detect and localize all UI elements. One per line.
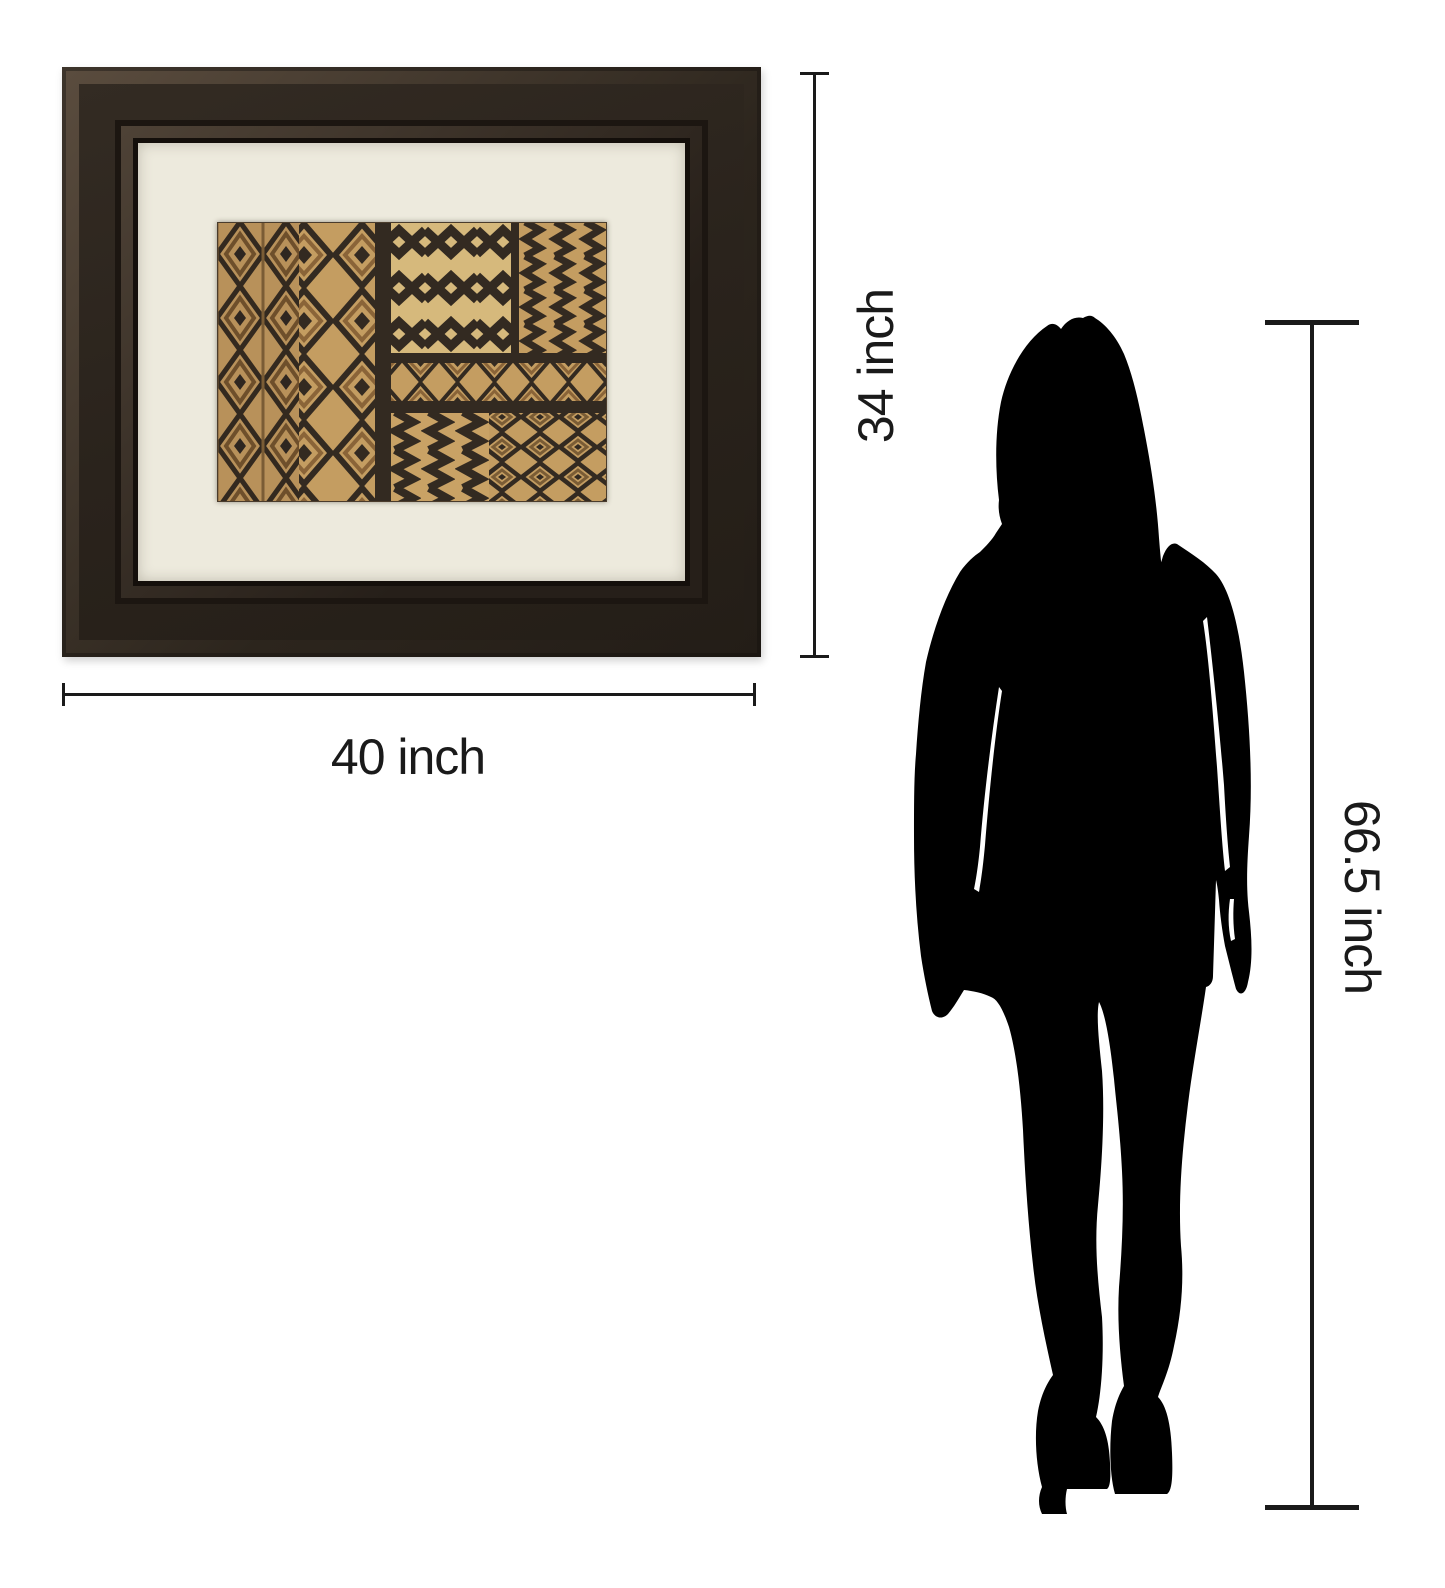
person-dimension-line xyxy=(1310,322,1314,1510)
frame-molding-inner-bevel xyxy=(121,126,702,598)
artwork-image xyxy=(217,222,607,502)
height-dimension-top-cap xyxy=(800,72,829,75)
width-dimension-right-cap xyxy=(753,683,756,706)
picture-frame xyxy=(62,67,761,657)
person-dimension-bottom-cap xyxy=(1265,1505,1359,1510)
person-dimension-top-cap xyxy=(1265,320,1359,325)
mat-board xyxy=(138,143,685,581)
height-dimension-bottom-cap xyxy=(800,655,829,658)
height-dimension-line xyxy=(813,72,816,658)
frame-molding-flat xyxy=(79,84,744,640)
width-dimension-left-cap xyxy=(62,683,65,706)
width-dimension-line xyxy=(62,693,756,696)
frame-height-label: 34 inch xyxy=(851,289,901,443)
person-height-label: 66.5 inch xyxy=(1337,800,1387,994)
frame-inner-lip xyxy=(133,138,690,586)
frame-molding-outer-bevel xyxy=(66,71,757,653)
size-guide-graphic: 34 inch 40 inch 66.5 inch xyxy=(0,0,1445,1588)
frame-width-label: 40 inch xyxy=(331,732,485,782)
frame-molding-groove xyxy=(115,120,708,604)
woman-silhouette xyxy=(895,315,1275,1515)
